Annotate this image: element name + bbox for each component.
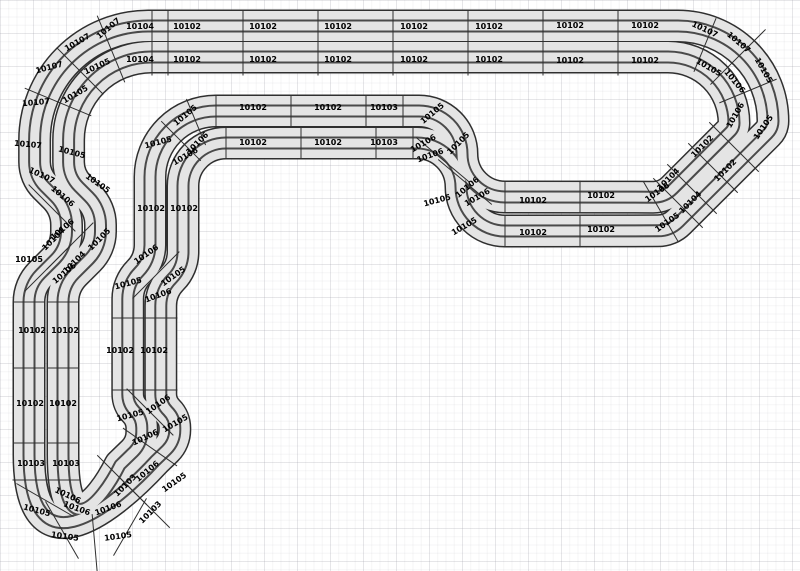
part-label[interactable]: 10102 [324, 55, 352, 64]
part-label[interactable]: 10102 [519, 228, 547, 237]
part-label[interactable]: 10102 [587, 225, 615, 234]
part-label[interactable]: 10102 [475, 22, 503, 31]
part-label[interactable]: 10102 [631, 21, 659, 30]
part-label[interactable]: 10103 [370, 138, 398, 147]
part-label[interactable]: 10102 [51, 326, 79, 335]
part-label[interactable]: 10107 [14, 139, 43, 150]
part-label[interactable]: 10105 [104, 530, 133, 543]
part-label[interactable]: 10102 [106, 346, 134, 355]
part-label[interactable]: 10103 [52, 459, 80, 468]
part-label[interactable]: 10105 [15, 255, 43, 264]
part-label[interactable]: 10103 [370, 103, 398, 112]
part-label[interactable]: 10102 [239, 103, 267, 112]
part-label[interactable]: 10102 [400, 22, 428, 31]
part-label[interactable]: 10102 [173, 22, 201, 31]
part-label[interactable]: 10102 [140, 346, 168, 355]
part-label[interactable]: 10102 [239, 138, 267, 147]
part-label[interactable]: 10104 [126, 22, 154, 31]
part-label[interactable]: 10102 [16, 399, 44, 408]
part-label[interactable]: 10102 [324, 22, 352, 31]
part-label[interactable]: 10102 [49, 399, 77, 408]
part-label[interactable]: 10102 [587, 191, 615, 200]
part-label[interactable]: 10103 [17, 459, 45, 468]
track-plan-canvas: 1010410102101021010210102101021010210102… [0, 0, 800, 571]
part-label[interactable]: 10102 [249, 55, 277, 64]
part-label[interactable]: 10102 [170, 204, 198, 213]
part-label[interactable]: 10102 [475, 55, 503, 64]
part-label[interactable]: 10102 [18, 326, 46, 335]
part-label[interactable]: 10102 [556, 56, 584, 65]
part-label[interactable]: 10102 [631, 56, 659, 65]
part-label[interactable]: 10104 [126, 55, 154, 64]
track-plan-drawing: 1010410102101021010210102101021010210102… [0, 0, 800, 571]
part-label[interactable]: 10102 [137, 204, 165, 213]
part-label[interactable]: 10102 [314, 103, 342, 112]
part-label[interactable]: 10102 [400, 55, 428, 64]
part-label[interactable]: 10102 [556, 21, 584, 30]
part-label[interactable]: 10103 [137, 499, 163, 525]
part-label[interactable]: 10102 [249, 22, 277, 31]
part-label[interactable]: 10102 [173, 55, 201, 64]
part-label[interactable]: 10102 [314, 138, 342, 147]
part-label[interactable]: 10102 [519, 196, 547, 205]
